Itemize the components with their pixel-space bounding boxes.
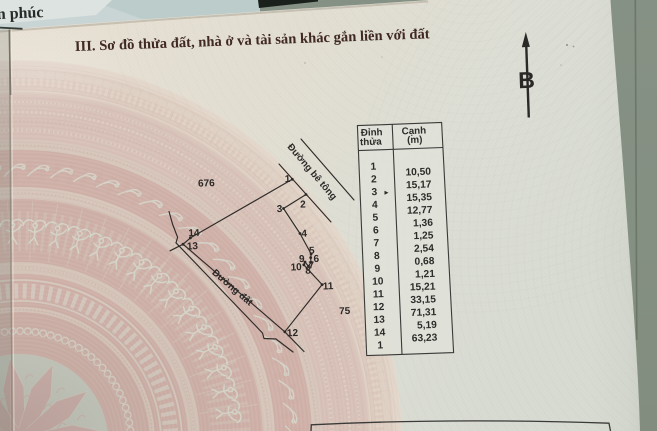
svg-text:10,50: 10,50	[405, 167, 431, 179]
svg-text:75: 75	[339, 306, 351, 317]
svg-text:B: B	[518, 67, 536, 94]
svg-text:3: 3	[371, 187, 377, 198]
svg-text:6: 6	[313, 254, 319, 265]
svg-text:14: 14	[374, 327, 386, 338]
svg-text:5: 5	[372, 213, 378, 224]
svg-text:0,68: 0,68	[414, 256, 435, 268]
svg-text:15,21: 15,21	[410, 281, 436, 293]
svg-text:2,54: 2,54	[414, 243, 435, 255]
svg-text:9: 9	[374, 264, 380, 275]
svg-text:13: 13	[187, 241, 199, 252]
svg-text:14: 14	[188, 228, 200, 239]
svg-text:11: 11	[373, 289, 384, 300]
svg-text:33,15: 33,15	[410, 294, 436, 306]
svg-text:1: 1	[370, 161, 376, 172]
svg-text:10: 10	[290, 262, 302, 273]
svg-text:8: 8	[305, 266, 311, 277]
svg-text:4: 4	[372, 200, 378, 211]
svg-text:12,77: 12,77	[407, 205, 433, 217]
svg-text:13: 13	[373, 315, 385, 326]
svg-text:6: 6	[373, 225, 379, 236]
svg-text:11: 11	[323, 281, 334, 292]
svg-text:15,17: 15,17	[406, 179, 432, 191]
svg-text:1,25: 1,25	[413, 230, 434, 242]
svg-text:thửa: thửa	[360, 137, 383, 149]
svg-text:5,19: 5,19	[417, 320, 438, 332]
svg-text:676: 676	[198, 178, 215, 190]
svg-text:12: 12	[373, 302, 385, 313]
svg-text:10: 10	[372, 276, 384, 287]
svg-text:h phúc: h phúc	[0, 4, 44, 23]
svg-text:4: 4	[301, 229, 307, 240]
svg-text:1,36: 1,36	[413, 218, 434, 230]
svg-text:1,21: 1,21	[415, 269, 436, 281]
svg-text:3: 3	[277, 204, 283, 215]
svg-text:71,31: 71,31	[411, 307, 437, 319]
svg-text:1: 1	[285, 174, 291, 185]
svg-text:2: 2	[371, 174, 377, 185]
svg-text:8: 8	[374, 251, 380, 262]
svg-text:15,35: 15,35	[406, 192, 432, 204]
svg-text:7: 7	[373, 238, 379, 249]
svg-text:1: 1	[377, 340, 383, 351]
svg-text:(m): (m)	[407, 135, 423, 147]
svg-text:12: 12	[287, 328, 299, 339]
svg-text:2: 2	[300, 199, 306, 210]
svg-text:63,23: 63,23	[412, 333, 438, 345]
